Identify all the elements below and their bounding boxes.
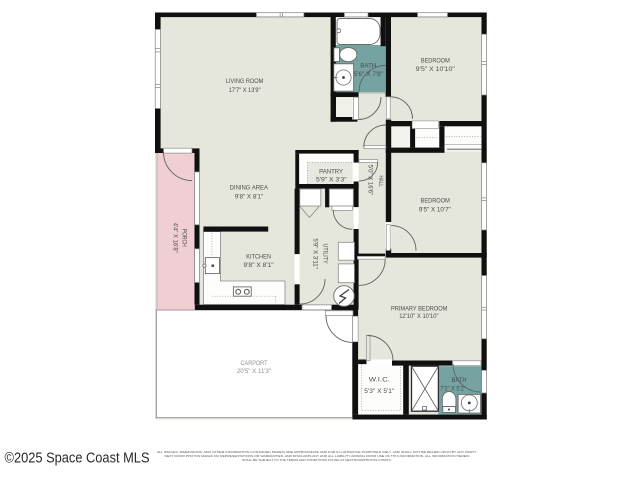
svg-text:KITCHEN: KITCHEN — [246, 254, 271, 261]
svg-text:9'5" X 10'7": 9'5" X 10'7" — [419, 208, 451, 214]
svg-text:17'7" X 13'9": 17'7" X 13'9" — [229, 88, 261, 94]
svg-text:7'2" X 5'2": 7'2" X 5'2" — [440, 387, 465, 393]
svg-text:UTILITY: UTILITY — [322, 244, 329, 265]
svg-text:SHALL BE SUBJECT TO THE TERMS: SHALL BE SUBJECT TO THE TERMS AND CONDIT… — [242, 458, 392, 462]
svg-text:5'9" X 3'3": 5'9" X 3'3" — [316, 178, 347, 184]
svg-text:5'9" X 3'11": 5'9" X 3'11" — [312, 238, 318, 269]
svg-text:BEDROOM: BEDROOM — [421, 198, 450, 205]
svg-text:W.I.C.: W.I.C. — [369, 377, 390, 384]
svg-text:LIVING ROOM: LIVING ROOM — [226, 78, 264, 85]
svg-text:9'8" X 8'1": 9'8" X 8'1" — [244, 263, 274, 269]
svg-text:20'5" X 11'3": 20'5" X 11'3" — [237, 369, 271, 375]
svg-text:PRIMARY BEDROOM: PRIMARY BEDROOM — [391, 305, 447, 312]
svg-text:9'8" X 8'1": 9'8" X 8'1" — [235, 194, 264, 200]
svg-text:9'5" X 10'10": 9'5" X 10'10" — [416, 67, 455, 73]
svg-text:5'0" X 16'6": 5'0" X 16'6" — [367, 165, 373, 196]
svg-text:CARPORT: CARPORT — [241, 360, 268, 367]
svg-text:12'10" X 10'10": 12'10" X 10'10" — [399, 314, 438, 320]
svg-text:©2025 Space Coast MLS: ©2025 Space Coast MLS — [5, 450, 150, 467]
svg-text:BEDROOM: BEDROOM — [421, 58, 450, 65]
svg-text:PORCH: PORCH — [181, 229, 188, 247]
svg-text:5'6" X 7'8": 5'6" X 7'8" — [354, 72, 383, 78]
svg-text:5'3" X 5'1": 5'3" X 5'1" — [364, 389, 394, 395]
svg-text:BATH: BATH — [360, 62, 376, 69]
svg-text:4'4" X 16'8": 4'4" X 16'8" — [172, 223, 178, 253]
svg-text:DINING AREA: DINING AREA — [230, 184, 269, 191]
svg-text:BATH: BATH — [452, 377, 467, 384]
svg-text:HALL: HALL — [377, 176, 384, 188]
svg-text:PANTRY: PANTRY — [319, 169, 344, 176]
